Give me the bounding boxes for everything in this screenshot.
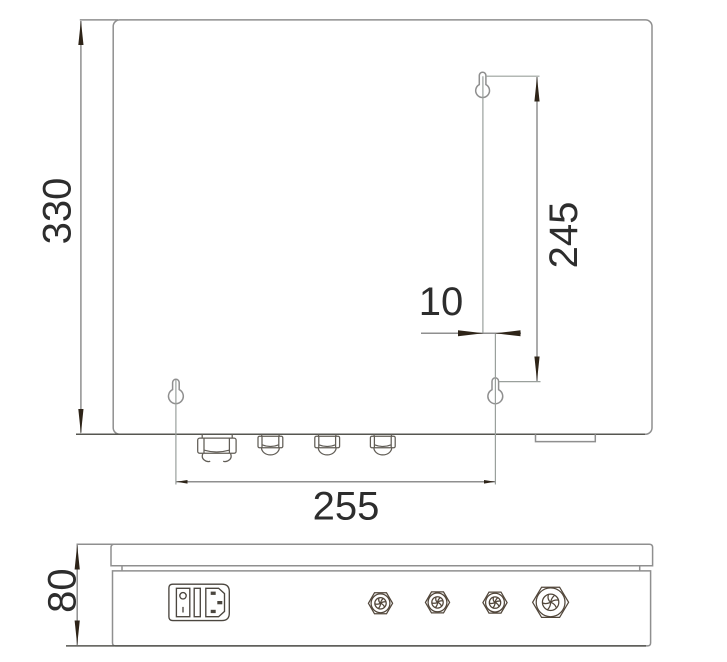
svg-text:255: 255 [313, 485, 380, 529]
svg-text:80: 80 [40, 568, 84, 613]
svg-text:245: 245 [542, 202, 586, 269]
svg-text:330: 330 [36, 178, 80, 245]
svg-text:10: 10 [419, 280, 464, 324]
